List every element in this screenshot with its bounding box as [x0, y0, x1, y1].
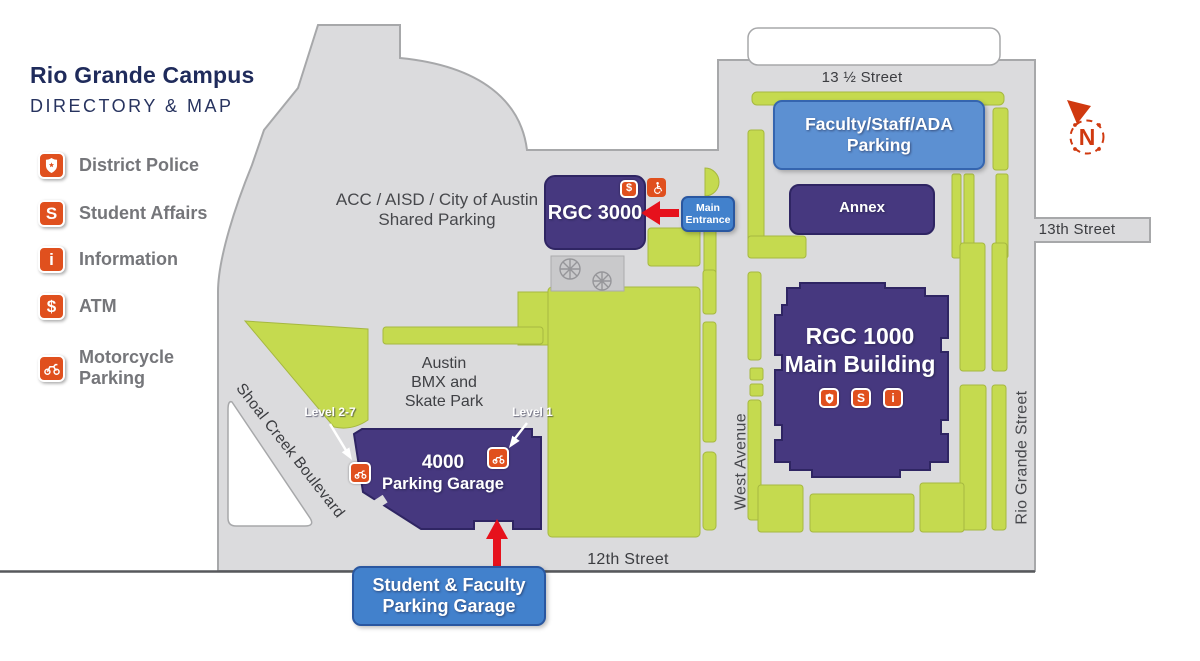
parking-strip: [648, 228, 700, 266]
skate-park-line3: Skate Park: [405, 392, 483, 411]
legend-item-student-affairs: S Student Affairs: [38, 200, 207, 227]
student-garage-line1: Student & Faculty: [372, 575, 525, 596]
parking-strip: [703, 270, 716, 314]
street-label-13-half: 13 ½ Street: [792, 69, 932, 87]
faculty-parking-callout: Faculty/Staff/ADA Parking: [773, 100, 985, 170]
legend-item-district-police: District Police: [38, 152, 199, 179]
faculty-parking-line2: Parking: [847, 135, 911, 156]
parking-strip: [992, 243, 1007, 371]
legend-item-motorcycle-parking: Motorcycle Parking: [38, 347, 191, 389]
rgc3000-label: RGC 3000: [545, 198, 645, 228]
parking-strip: [703, 452, 716, 530]
parking-strip: [960, 243, 985, 371]
city-block-north: [748, 28, 1000, 65]
street-label-west-avenue: West Avenue: [731, 392, 750, 532]
motorcycle-parking-icon: [38, 355, 65, 382]
student-affairs-icon: S: [851, 388, 871, 408]
shared-parking-label: ACC / AISD / City of Austin Shared Parki…: [297, 190, 577, 231]
parking-strip: [748, 272, 761, 360]
faculty-parking-line1: Faculty/Staff/ADA: [805, 114, 953, 135]
page-subtitle: DIRECTORY & MAP: [30, 96, 234, 118]
page-title: Rio Grande Campus: [30, 62, 255, 90]
police-badge-icon: [38, 152, 65, 179]
rgc1000-line2: Main Building: [785, 351, 936, 379]
parking-strip: [750, 368, 763, 380]
street-label-13th: 13th Street: [1017, 221, 1137, 239]
legend-label: Motorcycle Parking: [79, 347, 191, 389]
level-2-7-label: Level 2-7: [285, 405, 375, 419]
main-entrance-line1: Main: [696, 202, 720, 214]
utility-pad: [551, 256, 624, 291]
parking-strip: [703, 322, 716, 442]
parking-strip: [810, 494, 914, 532]
shared-parking-line1: ACC / AISD / City of Austin: [336, 190, 538, 210]
street-label-12th: 12th Street: [558, 550, 698, 569]
accessible-entrance-icon: [647, 178, 666, 197]
police-badge-icon: [819, 388, 839, 408]
parking-strip: [748, 236, 806, 258]
legend-label: Student Affairs: [79, 203, 207, 224]
level-1-label: Level 1: [490, 405, 575, 419]
motorcycle-parking-icon: [349, 462, 371, 484]
annex-label: Annex: [790, 199, 934, 217]
street-label-rio-grande: Rio Grande Street: [1012, 378, 1031, 538]
legend-item-information: i Information: [38, 246, 178, 273]
skate-park-label: Austin BMX and Skate Park: [384, 354, 504, 412]
student-garage-callout: Student & Faculty Parking Garage: [352, 566, 546, 626]
legend-label: ATM: [79, 296, 117, 317]
parking-strip: [920, 483, 964, 532]
garage4000-line2: Parking Garage: [382, 475, 504, 495]
skate-park-line2: BMX and: [411, 373, 477, 392]
parking-strip: [992, 385, 1006, 530]
parking-strip: [758, 485, 803, 532]
compass-north-label: N: [1072, 122, 1102, 152]
student-garage-line2: Parking Garage: [382, 596, 515, 617]
legend-label: Information: [79, 249, 178, 270]
building-rgc1000: [775, 283, 948, 477]
atm-icon: $: [38, 293, 65, 320]
student-affairs-icon: S: [38, 200, 65, 227]
legend-item-atm: $ ATM: [38, 293, 117, 320]
motorcycle-parking-icon: [487, 447, 509, 469]
rgc1000-label: RGC 1000 Main Building: [770, 323, 950, 378]
rgc1000-line1: RGC 1000: [806, 323, 915, 351]
shared-parking-line2: Shared Parking: [378, 210, 495, 230]
information-icon: i: [38, 246, 65, 273]
parking-strip: [383, 327, 543, 344]
parking-strip: [993, 108, 1008, 170]
information-icon: i: [883, 388, 903, 408]
skate-park-line1: Austin: [422, 354, 466, 373]
main-entrance-callout: Main Entrance: [681, 196, 735, 232]
parking-strip: [750, 384, 763, 396]
legend-label: District Police: [79, 155, 199, 176]
garage4000-line1: 4000: [422, 452, 464, 475]
main-entrance-line2: Entrance: [686, 214, 731, 226]
campus-map-page: Rio Grande Campus DIRECTORY & MAP Distri…: [0, 0, 1200, 661]
atm-icon: $: [620, 180, 638, 198]
